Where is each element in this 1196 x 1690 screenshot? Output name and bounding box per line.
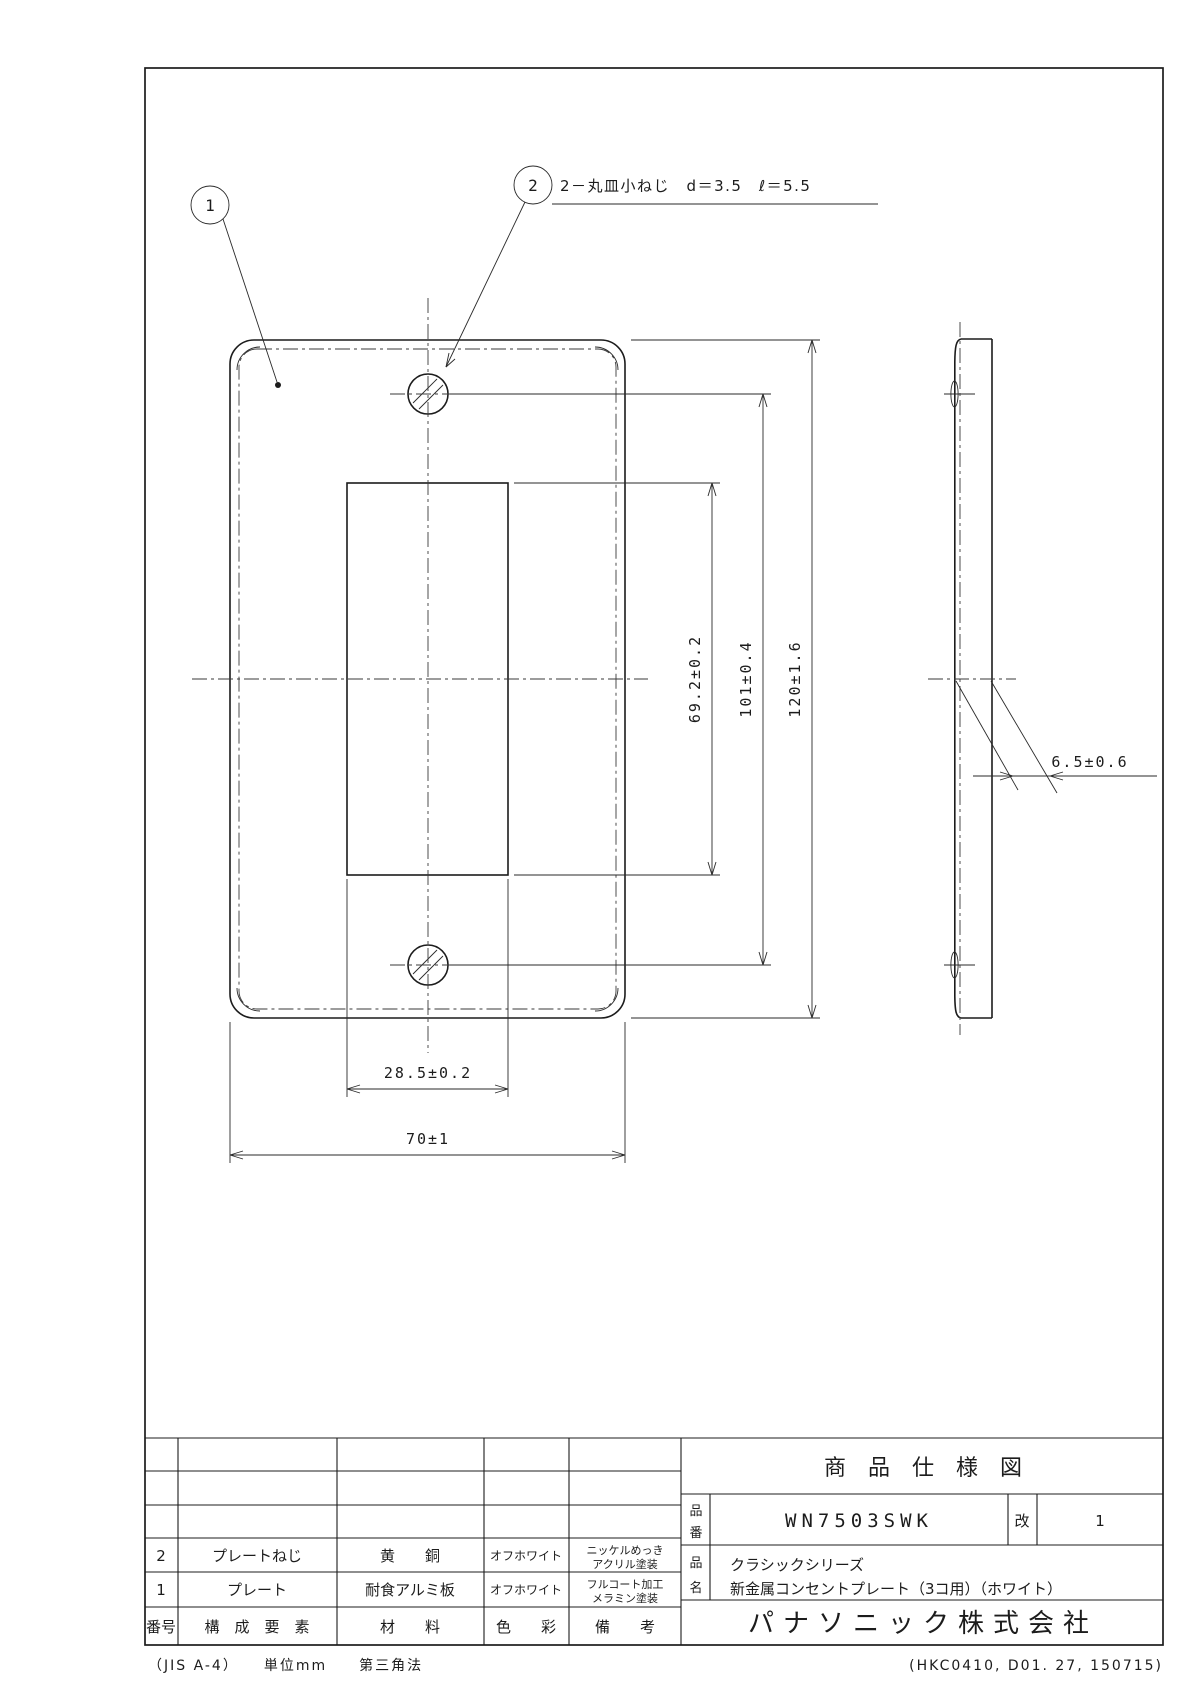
header-no: 番号 xyxy=(146,1618,176,1636)
row-component: プレートねじ xyxy=(212,1547,302,1565)
dim-thickness: 6.5±0.6 xyxy=(1051,753,1128,771)
name-label-top: 品 xyxy=(689,1556,702,1571)
side-view-centerlines xyxy=(928,322,1016,1035)
row-remark-1: ニッケルめっき xyxy=(587,1544,664,1557)
row-no: 2 xyxy=(156,1547,166,1565)
footer-right-note: (HKC0410, D01. 27, 150715) xyxy=(909,1658,1163,1674)
product-series: クラシックシリーズ xyxy=(730,1556,864,1574)
name-label-bottom: 名 xyxy=(689,1580,702,1596)
row-remark-2: アクリル塗装 xyxy=(592,1557,657,1571)
footer-left-note: （JIS A-4） 単位mm 第三角法 xyxy=(148,1657,423,1674)
side-view-plate: 6.5±0.6 xyxy=(928,322,1157,1035)
table-header-row: 番号 構 成 要 素 材 料 色 彩 備 考 xyxy=(146,1618,655,1636)
front-view-centerlines xyxy=(192,298,648,1053)
row-remark-1: フルコート加工 xyxy=(587,1578,664,1591)
header-component: 構 成 要 素 xyxy=(204,1618,309,1636)
title-block: 商 品 仕 様 図 品 番 WN7503SWK 改 1 品 名 クラシックシリー… xyxy=(689,1456,1104,1639)
company-name: パナソニック株式会社 xyxy=(748,1609,1098,1639)
part-no-label-top: 品 xyxy=(689,1504,702,1519)
horizontal-dimensions: 28.5±0.2 70±1 xyxy=(230,879,625,1163)
parts-table: 2 プレートねじ 黄 銅 オフホワイト ニッケルめっき アクリル塗装 1 プレー… xyxy=(146,1544,664,1636)
row-color: オフホワイト xyxy=(490,1583,562,1597)
revision-label: 改 xyxy=(1014,1512,1029,1530)
part-no-label-bottom: 番 xyxy=(689,1526,702,1541)
dim-plate-width: 70±1 xyxy=(406,1130,450,1148)
row-remark-2: メラミン塗装 xyxy=(592,1591,658,1605)
extension-lines-bottom xyxy=(230,879,625,1163)
sheet-title: 商 品 仕 様 図 xyxy=(824,1456,1022,1481)
spec-drawing-canvas: 69.2±0.2 101±0.4 120±1.6 28.5±0.2 70±1 xyxy=(0,0,1196,1690)
header-material: 材 料 xyxy=(380,1618,440,1636)
sheet-border xyxy=(145,68,1163,1645)
row-no: 1 xyxy=(156,1581,166,1599)
dim-screw-pitch: 101±0.4 xyxy=(737,640,755,717)
part-number: WN7503SWK xyxy=(785,1510,933,1532)
dim-opening-height: 69.2±0.2 xyxy=(686,635,704,723)
row-material: 耐食アルミ板 xyxy=(365,1581,455,1599)
spec-sheet: 69.2±0.2 101±0.4 120±1.6 28.5±0.2 70±1 xyxy=(0,0,1196,1690)
header-color: 色 彩 xyxy=(496,1618,556,1636)
screw-note: 2－丸皿小ねじ d＝3.5 ℓ＝5.5 xyxy=(560,177,811,195)
product-name: 新金属コンセントプレート（3コ用）（ホワイト） xyxy=(730,1580,1062,1598)
front-view-plate xyxy=(192,298,648,1053)
header-remarks: 備 考 xyxy=(595,1618,655,1636)
leader-dot xyxy=(275,382,281,388)
table-row: 2 プレートねじ 黄 銅 オフホワイト ニッケルめっき アクリル塗装 xyxy=(156,1544,663,1571)
callouts: 1 2 2－丸皿小ねじ d＝3.5 ℓ＝5.5 xyxy=(191,166,878,388)
dim-opening-width: 28.5±0.2 xyxy=(384,1064,472,1082)
row-color: オフホワイト xyxy=(490,1549,562,1563)
table-row: 1 プレート 耐食アルミ板 オフホワイト フルコート加工 メラミン塗装 xyxy=(156,1578,663,1605)
dim-plate-height: 120±1.6 xyxy=(786,640,804,717)
balloon-2-number: 2 xyxy=(528,176,538,195)
thickness-dimension xyxy=(956,681,1157,793)
row-material: 黄 銅 xyxy=(380,1547,440,1565)
revision-value: 1 xyxy=(1095,1512,1105,1530)
balloon-1-number: 1 xyxy=(205,196,215,215)
row-component: プレート xyxy=(227,1581,287,1599)
